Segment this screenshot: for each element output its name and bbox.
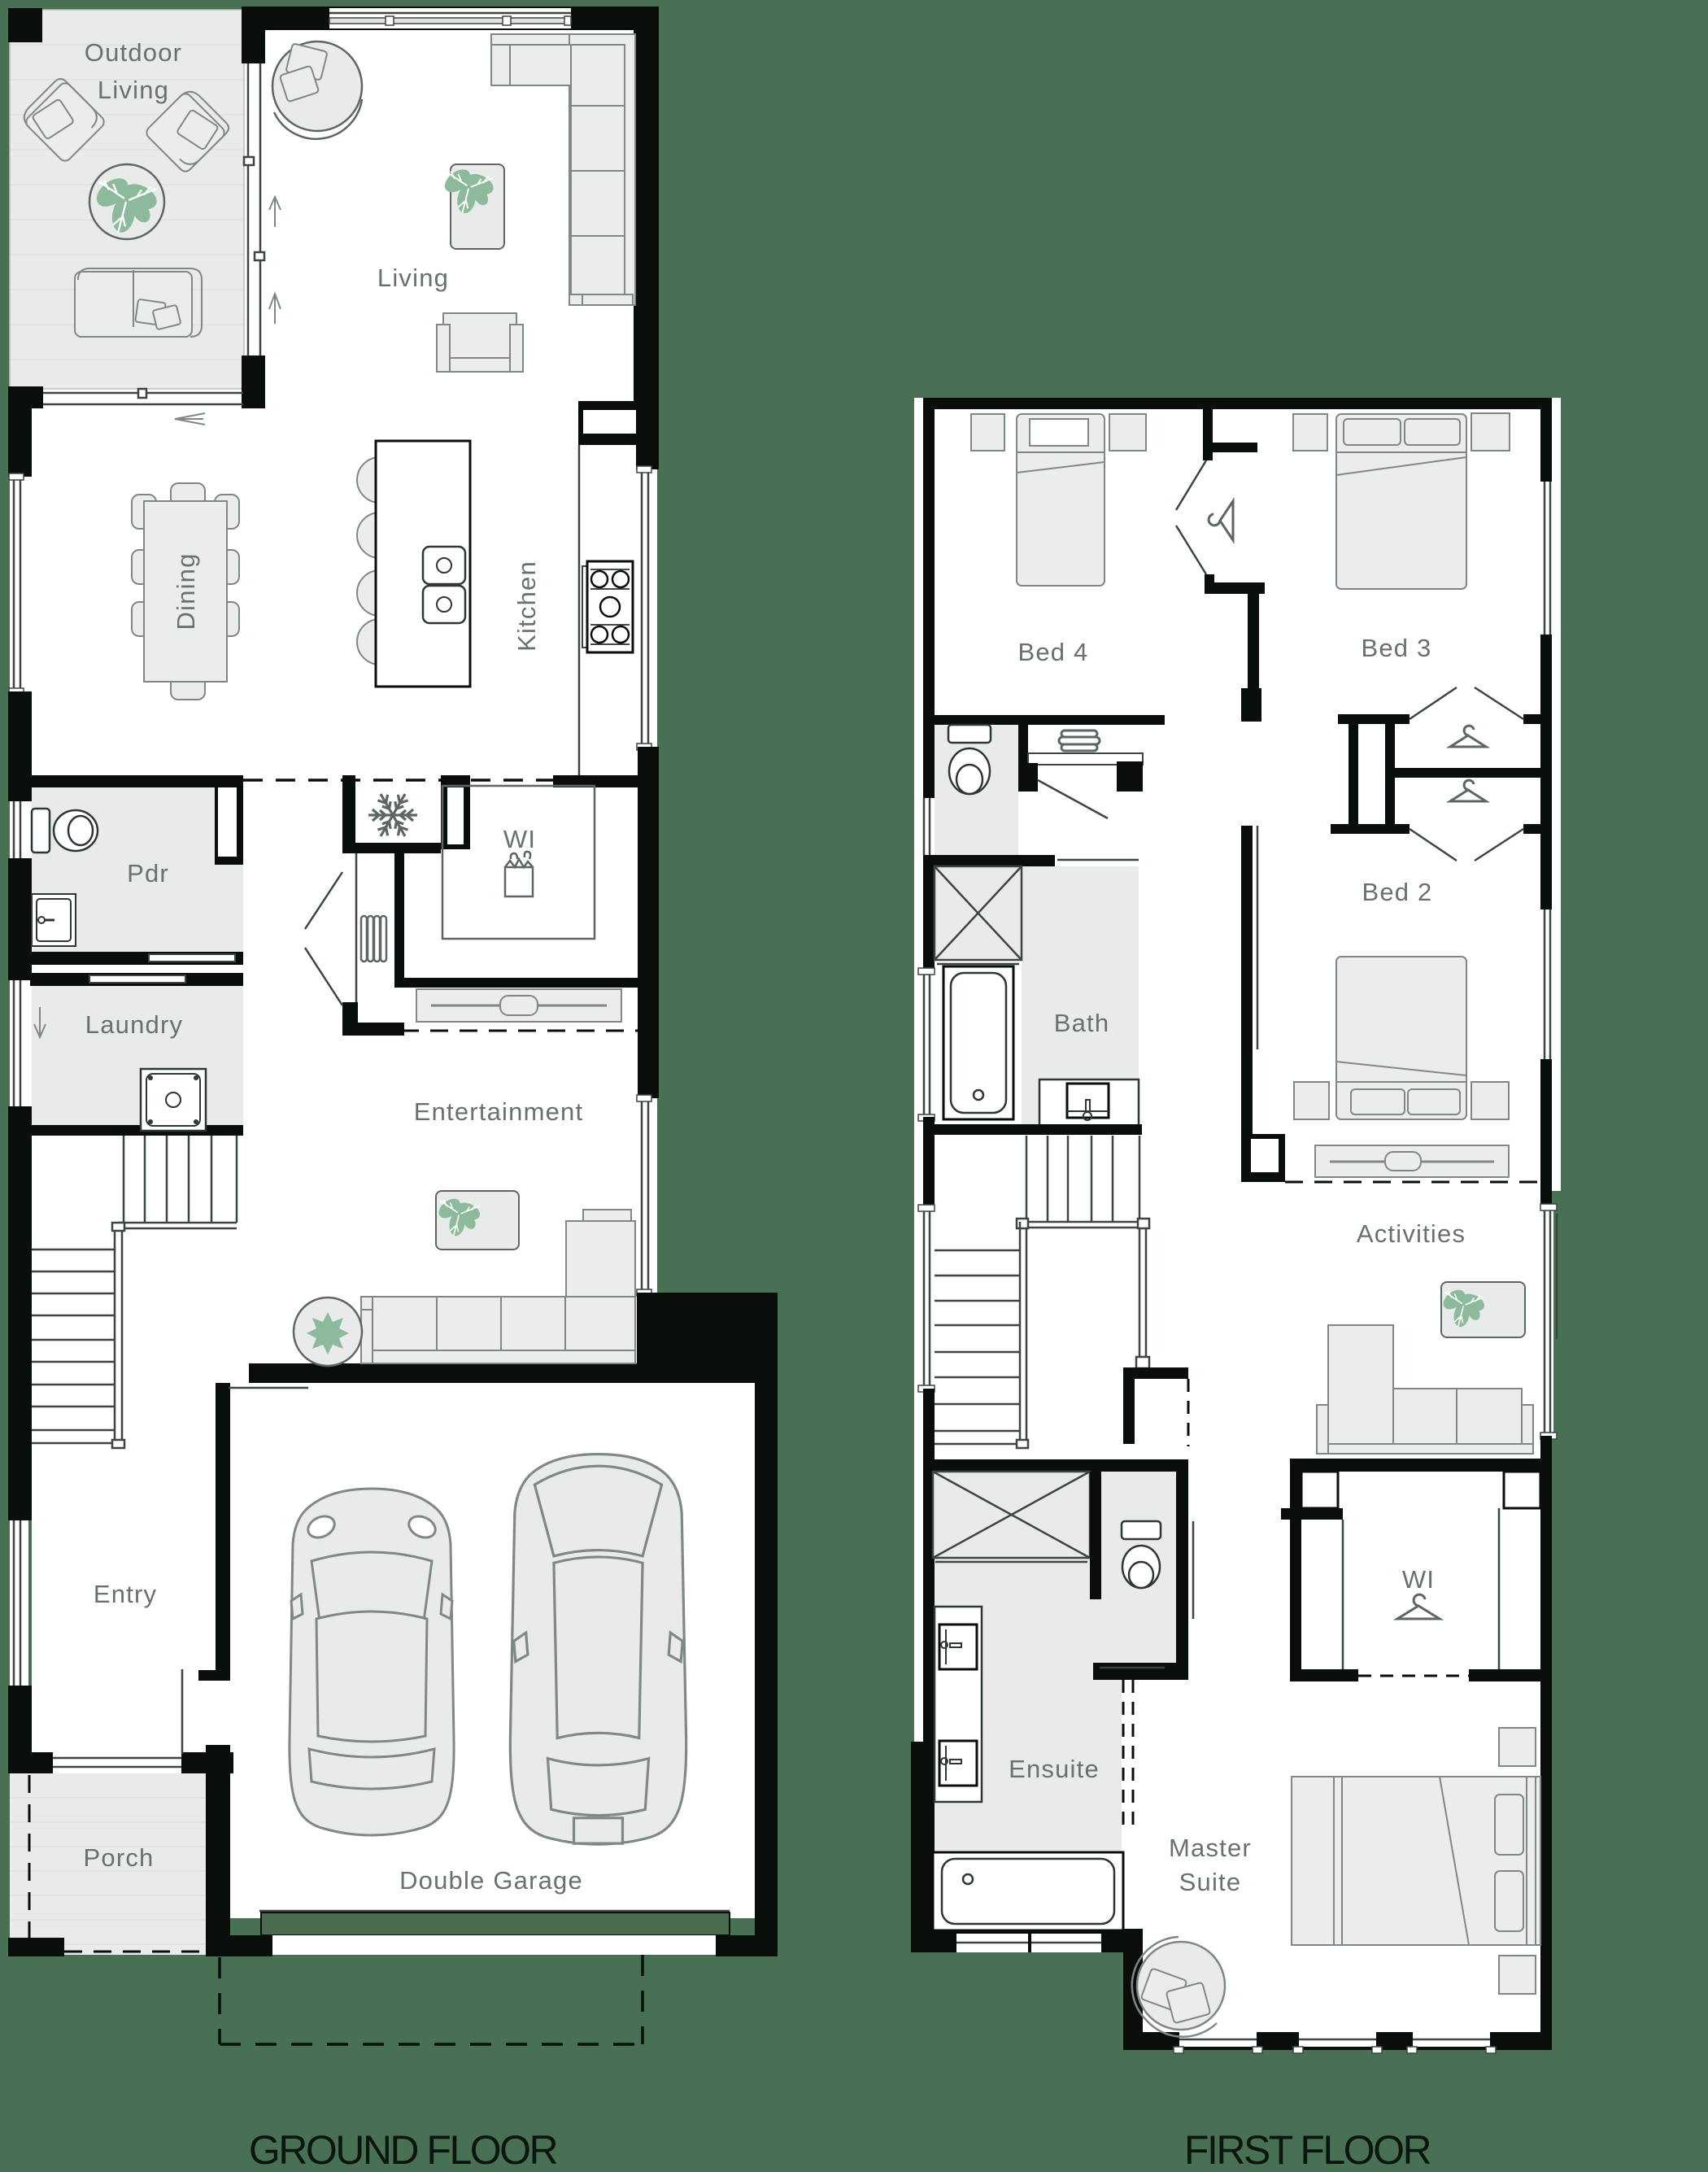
svg-text:Master: Master (1169, 1834, 1252, 1862)
svg-text:Entertainment: Entertainment (414, 1097, 584, 1126)
svg-text:Ensuite: Ensuite (1009, 1755, 1100, 1783)
svg-text:Kitchen: Kitchen (512, 560, 541, 652)
svg-text:Living: Living (377, 264, 449, 292)
svg-text:WI: WI (503, 825, 536, 853)
svg-text:Activities: Activities (1357, 1219, 1466, 1248)
svg-text:Porch: Porch (84, 1843, 155, 1872)
svg-text:Bed 2: Bed 2 (1362, 878, 1432, 906)
svg-text:Entry: Entry (94, 1580, 157, 1608)
svg-text:Laundry: Laundry (85, 1010, 183, 1039)
svg-text:FIRST FLOOR: FIRST FLOOR (1184, 2127, 1431, 2172)
svg-text:Suite: Suite (1179, 1868, 1242, 1896)
svg-text:Dining: Dining (172, 552, 200, 630)
svg-text:Bed 4: Bed 4 (1017, 638, 1088, 666)
svg-text:Living: Living (98, 76, 169, 104)
svg-text:WI: WI (1402, 1565, 1435, 1594)
svg-text:Bath: Bath (1054, 1009, 1110, 1037)
svg-text:Bed 3: Bed 3 (1361, 634, 1431, 662)
svg-text:Double Garage: Double Garage (399, 1866, 583, 1895)
svg-text:Pdr: Pdr (127, 859, 169, 888)
svg-text:GROUND FLOOR: GROUND FLOOR (249, 2127, 557, 2172)
svg-text:Outdoor: Outdoor (85, 38, 182, 67)
